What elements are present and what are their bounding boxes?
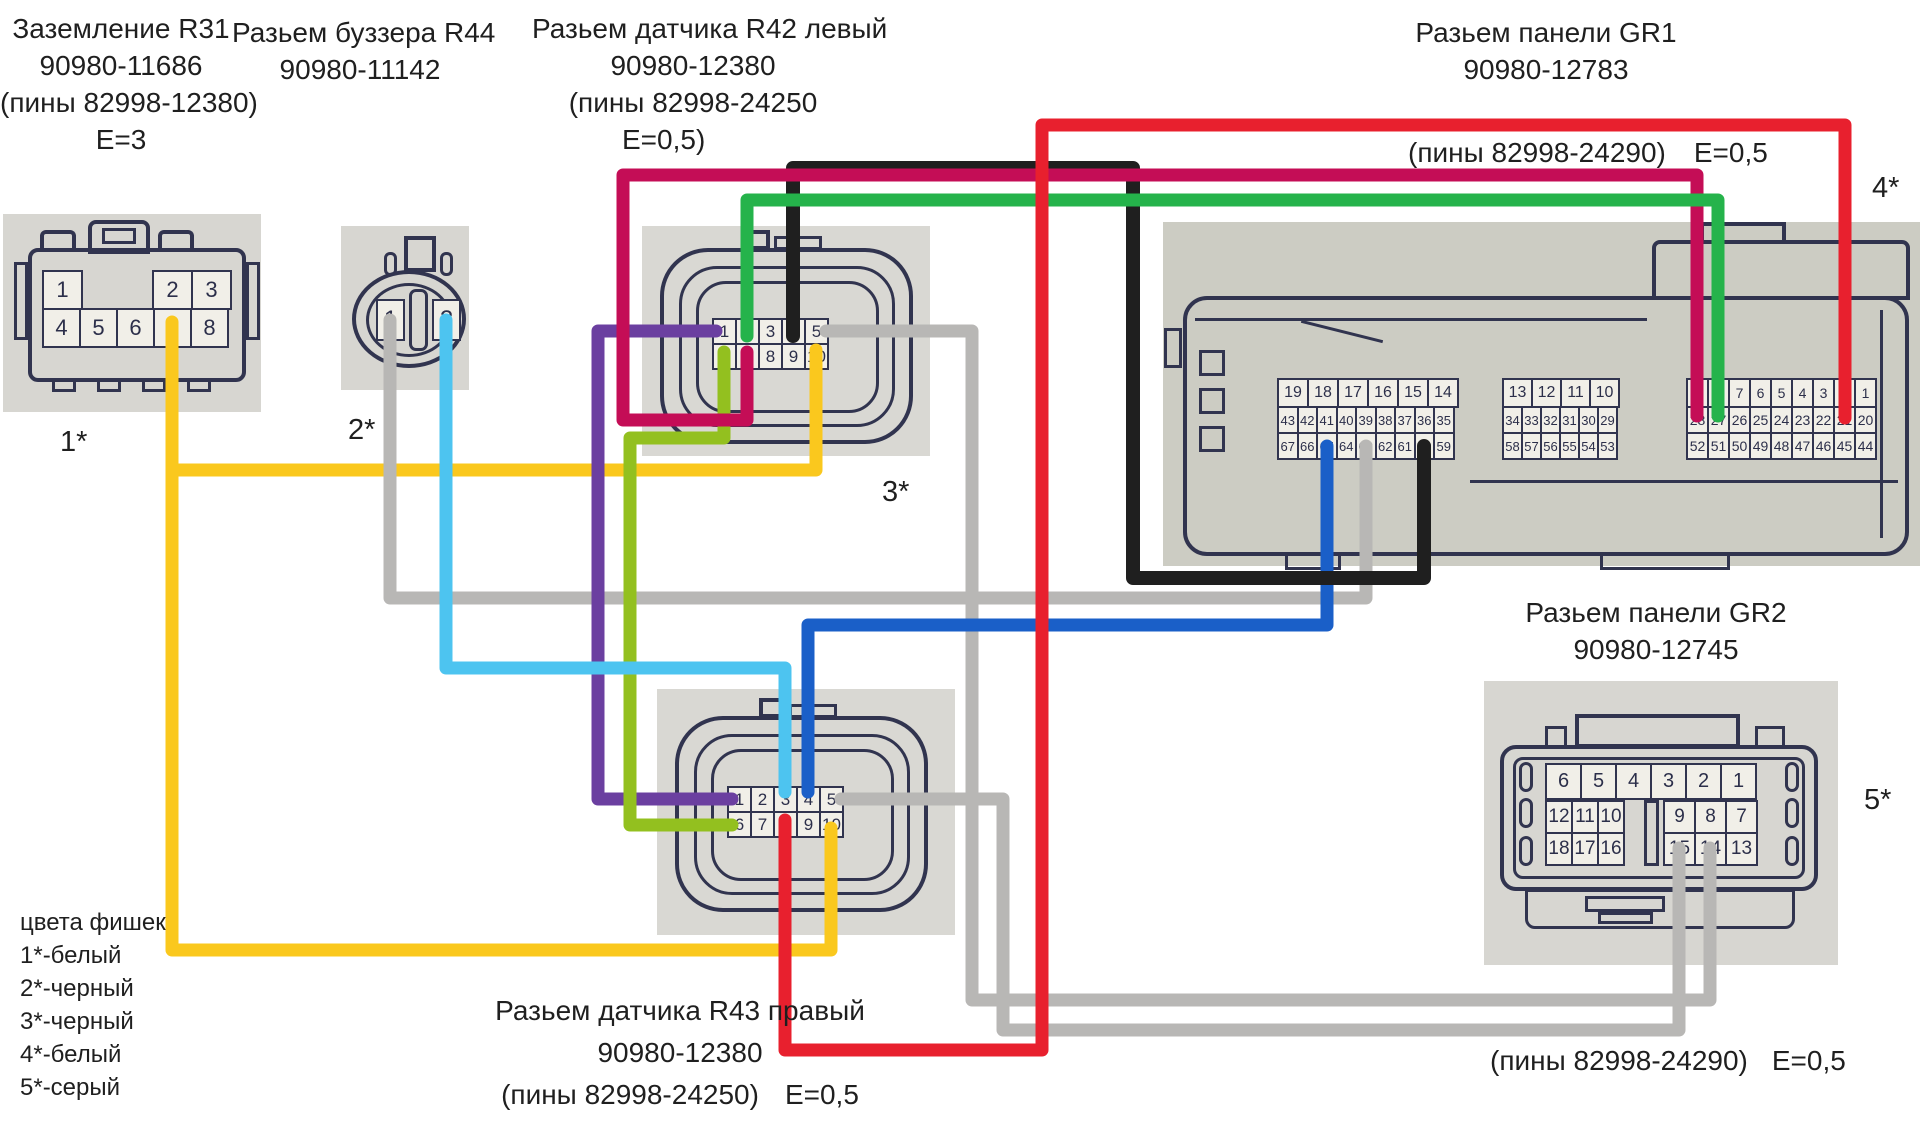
pin-cell: 1 — [1854, 378, 1877, 408]
pin-cell: 10 — [819, 811, 844, 838]
gr2-top-tab-wide — [1575, 714, 1740, 748]
gr2-slot-left-1 — [1519, 762, 1533, 792]
r31-bump-left — [40, 230, 76, 252]
gr2-left-bot-row: 181716 — [1545, 832, 1625, 866]
r31-pins-note: (пины 82998-12380) — [0, 84, 242, 121]
r44-pins: 12 — [376, 299, 461, 341]
pin-cell: 60 — [1414, 432, 1436, 460]
pin-cell: 48 — [1770, 432, 1793, 460]
r42-part-number: 90980-12380 — [532, 47, 854, 84]
r43-part-number: 90980-12380 — [470, 1032, 890, 1074]
pin-cell: 31 — [1559, 406, 1580, 434]
gr2-pins-note: (пины 82998-24290) — [1490, 1042, 1748, 1079]
pin-cell: 12 — [1545, 800, 1573, 834]
pin-cell: 59 — [1433, 432, 1455, 460]
gr2-base-inner-1 — [1585, 896, 1665, 912]
pin-cell: 2 — [735, 318, 760, 345]
pin-cell: 10 — [1597, 800, 1625, 834]
pin-cell: 42 — [1297, 406, 1319, 434]
pin-cell: 2 — [1833, 378, 1856, 408]
r42-tag: 3* — [882, 476, 909, 509]
gr2-e-note: Е=0,5 — [1772, 1042, 1846, 1079]
pin-cell: 20 — [1854, 406, 1877, 434]
gr1-e-note: Е=0,5 — [1694, 134, 1768, 171]
pin-cell: 6 — [1749, 378, 1772, 408]
pin-cell: 5 — [1770, 378, 1793, 408]
pin-cell: 44 — [1854, 432, 1877, 460]
pin-cell: 62 — [1375, 432, 1397, 460]
r42-tab-small — [744, 230, 770, 250]
pin-cell: 54 — [1578, 432, 1599, 460]
pin-cell: 57 — [1521, 432, 1542, 460]
pin-cell: 53 — [1597, 432, 1618, 460]
r42-label: Разьем датчика R42 левый 90980-12380 (пи… — [532, 10, 854, 158]
pin-cell: 19 — [1277, 378, 1309, 408]
pin-cell: 1 — [727, 786, 752, 813]
gr1-right-bot-row: 525150494847464544 — [1686, 432, 1877, 460]
gr1-left-square-2 — [1199, 388, 1225, 414]
pin-cell: 3 — [1812, 378, 1835, 408]
pin-cell: 18 — [1545, 832, 1573, 866]
gr2-center-divider — [1644, 800, 1659, 866]
pin-cell: 2 — [152, 270, 193, 310]
pin-cell: 4 — [796, 786, 821, 813]
pin-cell: 56 — [1540, 432, 1561, 460]
pin-cell: 8 — [1707, 378, 1730, 408]
gr2-slot-left-2 — [1519, 798, 1533, 828]
r42-pins-note: (пины 82998-24250 — [532, 84, 854, 121]
gr2-slot-right-1 — [1785, 762, 1799, 792]
gr1-left-mid-row: 434241403938373635 — [1277, 406, 1455, 434]
pin-cell: 55 — [1559, 432, 1580, 460]
pin-cell: 7 — [1728, 378, 1751, 408]
gr2-slot-right-3 — [1785, 836, 1799, 866]
r42-pins-1-5: 12345 — [712, 318, 829, 345]
r43-pins-line: (пины 82998-24250) Е=0,5 — [470, 1074, 890, 1116]
pin-cell: 5 — [804, 318, 829, 345]
pin-cell: 64 — [1336, 432, 1358, 460]
r43-pins-6-10: 678910 — [727, 811, 844, 838]
gr1-label: Разьем панели GR1 90980-12783 — [1400, 14, 1692, 88]
gr1-right-vline — [1880, 310, 1883, 538]
pin-cell: 8 — [1694, 800, 1727, 834]
pin-cell: 51 — [1707, 432, 1730, 460]
r43-tab-small — [759, 698, 785, 718]
pin-cell: 43 — [1277, 406, 1299, 434]
r31-latch-inner — [102, 228, 136, 244]
gr1-left-square-3 — [1199, 426, 1225, 452]
r31-foot-4 — [187, 380, 211, 392]
pin-cell: 21 — [1833, 406, 1856, 434]
pin-cell: 6 — [727, 811, 752, 838]
gr1-middle-top-row: 13121110 — [1502, 378, 1620, 408]
pin-cell: 58 — [1502, 432, 1523, 460]
pin-cell: 13 — [1502, 378, 1533, 408]
pin-cell: 2 — [432, 299, 461, 341]
pin-cell: 6 — [712, 343, 737, 370]
pin-cell: 52 — [1686, 432, 1709, 460]
r31-part-number: 90980-11686 — [0, 47, 242, 84]
gr1-middle-bot-row: 585756555453 — [1502, 432, 1618, 460]
r31-e-note: Е=3 — [0, 121, 242, 158]
pin-cell: 3 — [1650, 763, 1687, 800]
r31-foot-2 — [97, 380, 121, 392]
pin-cell: 4 — [1791, 378, 1814, 408]
r31-pin1: 1 — [42, 270, 83, 310]
pin-cell: 47 — [1791, 432, 1814, 460]
pin-cell: 41 — [1316, 406, 1338, 434]
pin-cell: 34 — [1502, 406, 1523, 434]
pin-cell: 45 — [1833, 432, 1856, 460]
r43-e-note: Е=0,5 — [785, 1074, 859, 1116]
wiring-diagram-canvas: 1 23 45678 12 12345 678910 12345 678910 … — [0, 0, 1920, 1124]
pin-cell: 4 — [1615, 763, 1652, 800]
pin-cell: 11 — [1560, 378, 1591, 408]
r31-foot-3 — [142, 380, 166, 392]
r44-tag: 2* — [348, 414, 375, 447]
pin-cell: 40 — [1336, 406, 1358, 434]
pin-cell: 38 — [1375, 406, 1397, 434]
pin-cell: 3 — [758, 318, 783, 345]
r44-bump-right — [440, 252, 453, 276]
pin-cell: 63 — [1355, 432, 1377, 460]
r44-title: Разьем буззера R44 — [232, 14, 488, 51]
pin-cell: 61 — [1394, 432, 1416, 460]
pin-cell: 35 — [1433, 406, 1455, 434]
r43-pins-1-5: 12345 — [727, 786, 844, 813]
gr2-base-inner-2 — [1598, 912, 1653, 924]
pin-cell: 16 — [1597, 832, 1625, 866]
gr2-pins-line: (пины 82998-24290) Е=0,5 — [1490, 1042, 1846, 1079]
pin-cell: 10 — [1589, 378, 1620, 408]
pin-cell: 65 — [1316, 432, 1338, 460]
gr2-left-mid-row: 121110 — [1545, 800, 1625, 834]
pin-cell: 29 — [1597, 406, 1618, 434]
legend-item: 4*-белый — [20, 1038, 166, 1071]
gr1-pins-line: (пины 82998-24290) Е=0,5 — [1408, 134, 1768, 171]
gr2-right-bot-row: 151413 — [1663, 832, 1758, 866]
gr2-part-number: 90980-12745 — [1500, 631, 1812, 668]
pin-cell: 9 — [796, 811, 821, 838]
pin-cell: 12 — [1531, 378, 1562, 408]
r42-e-note: Е=0,5) — [532, 121, 854, 158]
pin-cell: 2 — [1685, 763, 1722, 800]
pin-cell: 6 — [116, 308, 155, 348]
gr1-left-tab — [1164, 328, 1182, 368]
gr1-inner-top-line — [1195, 318, 1647, 321]
pin-cell: 10 — [804, 343, 829, 370]
pin-cell: 37 — [1394, 406, 1416, 434]
r31-label: Заземление R31 90980-11686 (пины 82998-1… — [0, 10, 242, 158]
r42-pins-6-10: 678910 — [712, 343, 829, 370]
pin-cell: 14 — [1427, 378, 1459, 408]
r31-pins-2-3: 23 — [152, 270, 232, 310]
pin-cell: 1 — [1720, 763, 1757, 800]
pin-cell: 1 — [712, 318, 737, 345]
r42-title: Разьем датчика R42 левый — [532, 10, 854, 47]
r43-label: Разьем датчика R43 правый 90980-12380 (п… — [470, 990, 890, 1116]
legend-item: 2*-черный — [20, 972, 166, 1005]
pin-cell: 22 — [1812, 406, 1835, 434]
pin-cell: 3 — [191, 270, 232, 310]
pin-cell: 18 — [1307, 378, 1339, 408]
pin-cell: 9 — [781, 343, 806, 370]
pin-cell: 33 — [1521, 406, 1542, 434]
pin-cell: 5 — [79, 308, 118, 348]
gr1-bottom-tab-a — [1285, 554, 1341, 570]
pin-cell: 1 — [376, 299, 405, 341]
pin-cell: 27 — [1707, 406, 1730, 434]
pin-cell: 7 — [750, 811, 775, 838]
r31-title: Заземление R31 — [0, 10, 242, 47]
pin-cell: 46 — [1812, 432, 1835, 460]
r44-top-post — [404, 236, 436, 272]
gr1-left-bot-row: 676665646362616059 — [1277, 432, 1455, 460]
pin-cell: 39 — [1355, 406, 1377, 434]
gr1-bottom-tab-b — [1600, 554, 1730, 570]
pin-cell: 17 — [1571, 832, 1599, 866]
legend-item: 5*-серый — [20, 1071, 166, 1104]
gr1-right-mid-row: 282726252423222120 — [1686, 406, 1877, 434]
gr1-pins-note: (пины 82998-24290) — [1408, 134, 1666, 171]
gr1-right-line — [1470, 480, 1898, 483]
pin-cell: 16 — [1367, 378, 1399, 408]
pin-cell: 4 — [42, 308, 81, 348]
pin-cell: 50 — [1728, 432, 1751, 460]
pin-cell: 26 — [1728, 406, 1751, 434]
pin-cell: 28 — [1686, 406, 1709, 434]
r31-bump-right — [158, 230, 194, 252]
gr1-left-square-1 — [1199, 350, 1225, 376]
gr2-label: Разьем панели GR2 90980-12745 — [1500, 594, 1812, 668]
pin-cell: 67 — [1277, 432, 1299, 460]
pin-cell: 8 — [758, 343, 783, 370]
r31-foot-1 — [52, 380, 76, 392]
pin-cell: 7 — [735, 343, 760, 370]
gr1-title: Разьем панели GR1 — [1400, 14, 1692, 51]
pin-cell: 5 — [819, 786, 844, 813]
pin-cell: 15 — [1397, 378, 1429, 408]
pin-cell: 6 — [1545, 763, 1582, 800]
pin-cell: 8 — [773, 811, 798, 838]
gr2-slot-right-2 — [1785, 798, 1799, 828]
pin-cell: 8 — [190, 308, 229, 348]
r31-right-wing — [246, 262, 260, 340]
r31-pins-4-8: 45678 — [42, 308, 229, 348]
gr1-left-top-row: 191817161514 — [1277, 378, 1459, 408]
gr2-tag: 5* — [1864, 784, 1891, 817]
r31-left-wing — [14, 262, 28, 340]
connector-colors-legend: цвета фишек 1*-белый 2*-черный 3*-черный… — [20, 906, 166, 1104]
pin-cell: 32 — [1540, 406, 1561, 434]
gr1-top-raised — [1652, 240, 1910, 300]
pin-cell: 49 — [1749, 432, 1772, 460]
gr1-right-top-row: 987654321 — [1686, 378, 1877, 408]
pin-cell: 11 — [1571, 800, 1599, 834]
pin-cell: 13 — [1725, 832, 1758, 866]
r43-pins-note: (пины 82998-24250) — [501, 1074, 759, 1116]
pin-cell: 7 — [153, 308, 192, 348]
pin-cell: 9 — [1663, 800, 1696, 834]
r43-title: Разьем датчика R43 правый — [470, 990, 890, 1032]
gr1-middle-mid-row: 343332313029 — [1502, 406, 1618, 434]
legend-title: цвета фишек — [20, 906, 166, 939]
pin-cell: 2 — [750, 786, 775, 813]
legend-item: 3*-черный — [20, 1005, 166, 1038]
gr1-part-number: 90980-12783 — [1400, 51, 1692, 88]
gr1-tag: 4* — [1872, 172, 1899, 205]
pin-cell: 66 — [1297, 432, 1319, 460]
pin-cell: 5 — [1580, 763, 1617, 800]
legend-item: 1*-белый — [20, 939, 166, 972]
pin-cell: 4 — [781, 318, 806, 345]
pin-cell: 9 — [1686, 378, 1709, 408]
pin-cell: 14 — [1694, 832, 1727, 866]
pin-cell: 17 — [1337, 378, 1369, 408]
pin-cell: 25 — [1749, 406, 1772, 434]
pin-cell: 3 — [773, 786, 798, 813]
pin-cell: 36 — [1414, 406, 1436, 434]
gr2-right-mid-row: 987 — [1663, 800, 1758, 834]
pin-cell: 24 — [1770, 406, 1793, 434]
r44-label: Разьем буззера R44 90980-11142 — [232, 14, 488, 88]
pin-cell: 1 — [42, 270, 83, 310]
pin-cell: 23 — [1791, 406, 1814, 434]
r31-tag: 1* — [60, 426, 87, 459]
pin-cell: 15 — [1663, 832, 1696, 866]
gr2-top-row: 654321 — [1545, 763, 1757, 800]
pin-cell: 7 — [1725, 800, 1758, 834]
gr2-slot-left-3 — [1519, 836, 1533, 866]
pin-cell: 30 — [1578, 406, 1599, 434]
r44-part-number: 90980-11142 — [232, 51, 488, 88]
gr2-title: Разьем панели GR2 — [1500, 594, 1812, 631]
